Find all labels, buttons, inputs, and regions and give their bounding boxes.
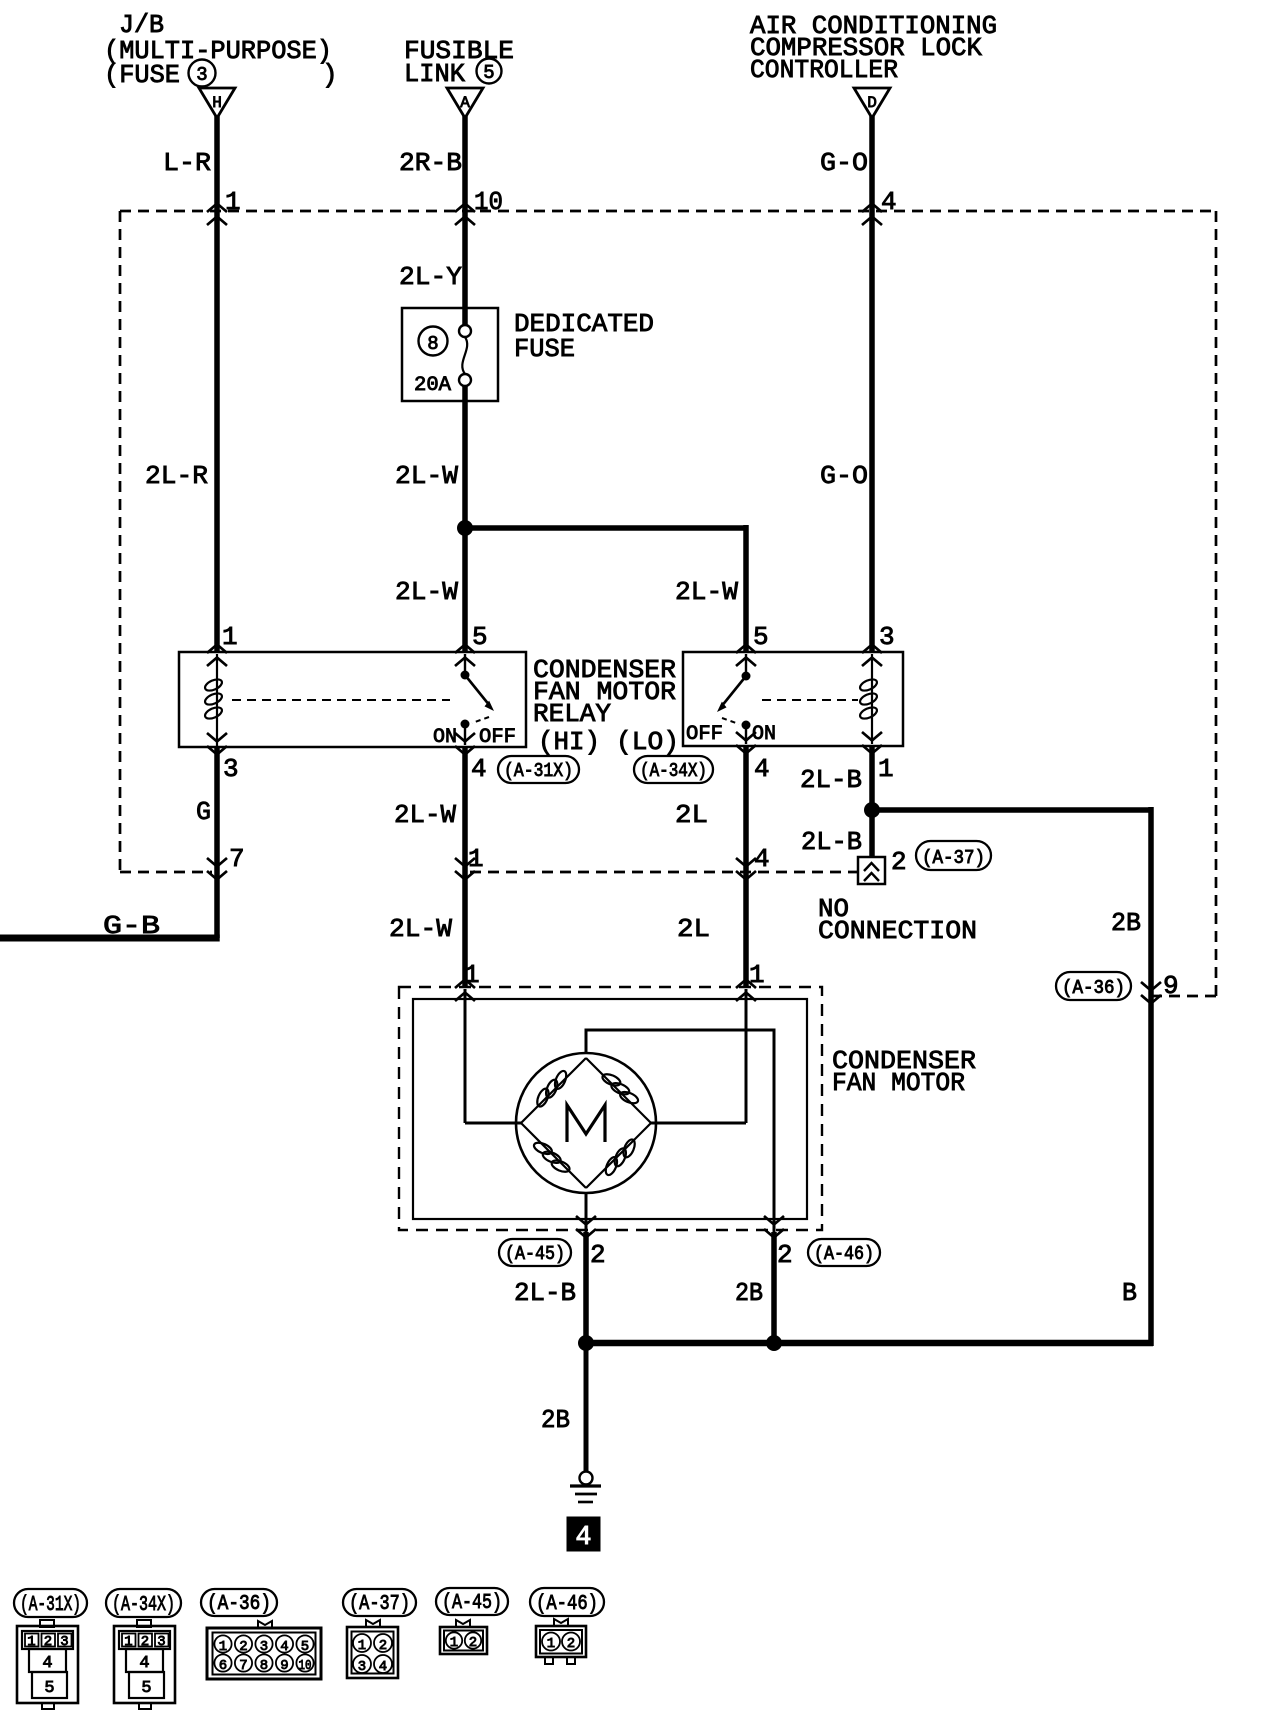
svg-text:3: 3 bbox=[196, 64, 207, 86]
svg-text:4: 4 bbox=[754, 754, 770, 784]
svg-text:9: 9 bbox=[280, 1658, 288, 1674]
svg-text:2: 2 bbox=[567, 1636, 575, 1652]
svg-text:1: 1 bbox=[219, 1639, 227, 1655]
svg-text:2L-W: 2L-W bbox=[394, 800, 456, 830]
svg-text:2L-B: 2L-B bbox=[514, 1278, 576, 1308]
svg-text:4: 4 bbox=[139, 1654, 149, 1673]
svg-text:2: 2 bbox=[379, 1638, 387, 1654]
svg-text:(A-37): (A-37) bbox=[349, 1593, 410, 1616]
svg-text:A: A bbox=[460, 94, 470, 112]
svg-text:): ) bbox=[322, 60, 338, 90]
svg-text:ON: ON bbox=[433, 726, 457, 749]
svg-text:1: 1 bbox=[547, 1636, 555, 1652]
svg-text:2L-B: 2L-B bbox=[800, 765, 862, 795]
svg-text:OFF: OFF bbox=[686, 723, 723, 746]
svg-text:CONTROLLER: CONTROLLER bbox=[750, 55, 898, 85]
svg-text:G-O: G-O bbox=[820, 461, 868, 491]
svg-text:G: G bbox=[196, 797, 211, 827]
svg-text:4: 4 bbox=[280, 1639, 288, 1655]
svg-text:6: 6 bbox=[219, 1658, 227, 1674]
svg-text:L-R: L-R bbox=[163, 148, 211, 178]
svg-text:G-B: G-B bbox=[103, 911, 160, 941]
svg-text:5: 5 bbox=[753, 622, 769, 652]
svg-text:9: 9 bbox=[1163, 971, 1179, 1001]
svg-text:(A-34X): (A-34X) bbox=[640, 760, 707, 782]
svg-text:1: 1 bbox=[124, 1634, 132, 1650]
svg-text:(A-46): (A-46) bbox=[536, 1593, 598, 1616]
svg-text:FAN MOTOR: FAN MOTOR bbox=[832, 1068, 965, 1098]
svg-text:H: H bbox=[212, 94, 222, 112]
svg-text:4: 4 bbox=[471, 754, 487, 784]
svg-text:2L-B: 2L-B bbox=[801, 827, 862, 857]
svg-text:(A-31X): (A-31X) bbox=[504, 760, 573, 782]
svg-text:OFF: OFF bbox=[479, 726, 516, 749]
svg-text:2B: 2B bbox=[541, 1405, 570, 1435]
svg-text:5: 5 bbox=[141, 1679, 151, 1698]
svg-text:2L: 2L bbox=[677, 914, 710, 944]
svg-text:8: 8 bbox=[260, 1658, 268, 1674]
svg-text:2B: 2B bbox=[1111, 908, 1141, 938]
svg-text:FUSE: FUSE bbox=[514, 334, 575, 364]
svg-text:G-O: G-O bbox=[820, 148, 868, 178]
svg-text:(LO): (LO) bbox=[616, 727, 679, 757]
svg-text:(A-46): (A-46) bbox=[814, 1243, 874, 1265]
svg-text:2L: 2L bbox=[675, 800, 708, 830]
svg-text:1: 1 bbox=[450, 1635, 458, 1651]
svg-text:LINK: LINK bbox=[404, 59, 465, 89]
svg-text:2: 2 bbox=[44, 1634, 52, 1650]
svg-text:(FUSE: (FUSE bbox=[104, 60, 180, 90]
svg-text:2L-W: 2L-W bbox=[395, 461, 458, 491]
svg-text:5: 5 bbox=[44, 1679, 54, 1698]
svg-text:3: 3 bbox=[223, 754, 239, 784]
svg-text:(A-36): (A-36) bbox=[1062, 977, 1125, 999]
svg-text:2: 2 bbox=[469, 1635, 477, 1651]
svg-text:4: 4 bbox=[575, 1523, 591, 1553]
svg-text:2: 2 bbox=[141, 1634, 149, 1650]
svg-text:(A-31X): (A-31X) bbox=[20, 1594, 81, 1617]
svg-text:7: 7 bbox=[229, 844, 245, 874]
svg-text:(A-45): (A-45) bbox=[442, 1592, 502, 1615]
svg-text:1: 1 bbox=[222, 622, 238, 652]
svg-text:2B: 2B bbox=[735, 1278, 763, 1308]
svg-text:RELAY: RELAY bbox=[533, 699, 611, 729]
svg-text:4: 4 bbox=[42, 1654, 52, 1673]
svg-text:3: 3 bbox=[157, 1634, 165, 1650]
svg-text:1: 1 bbox=[464, 960, 480, 990]
svg-text:ON: ON bbox=[752, 723, 776, 746]
svg-text:1: 1 bbox=[468, 844, 484, 874]
svg-text:2R-B: 2R-B bbox=[399, 148, 462, 178]
svg-text:CONNECTION: CONNECTION bbox=[818, 916, 977, 946]
svg-text:(HI): (HI) bbox=[538, 727, 600, 757]
svg-text:10: 10 bbox=[299, 1658, 312, 1674]
svg-text:2: 2 bbox=[777, 1240, 793, 1270]
svg-text:2L-W: 2L-W bbox=[389, 914, 452, 944]
svg-text:4: 4 bbox=[379, 1659, 387, 1675]
svg-text:3: 3 bbox=[879, 622, 895, 652]
svg-text:1: 1 bbox=[878, 754, 894, 784]
svg-text:2: 2 bbox=[891, 847, 907, 877]
svg-text:5: 5 bbox=[472, 622, 488, 652]
svg-text:D: D bbox=[867, 94, 877, 112]
svg-text:3: 3 bbox=[60, 1634, 68, 1650]
svg-text:(A-34X): (A-34X) bbox=[112, 1594, 175, 1617]
svg-text:4: 4 bbox=[754, 844, 770, 874]
svg-text:10: 10 bbox=[474, 187, 503, 217]
svg-text:1: 1 bbox=[27, 1634, 35, 1650]
svg-text:8: 8 bbox=[427, 333, 438, 355]
svg-text:B: B bbox=[1122, 1278, 1137, 1308]
svg-text:2: 2 bbox=[590, 1240, 606, 1270]
svg-text:1: 1 bbox=[225, 187, 241, 217]
svg-text:3: 3 bbox=[260, 1639, 268, 1655]
svg-text:5: 5 bbox=[483, 62, 494, 84]
svg-text:2L-W: 2L-W bbox=[395, 577, 458, 607]
svg-text:3: 3 bbox=[358, 1659, 366, 1675]
svg-text:5: 5 bbox=[301, 1639, 309, 1655]
svg-text:1: 1 bbox=[749, 960, 765, 990]
svg-text:4: 4 bbox=[881, 187, 897, 217]
svg-text:7: 7 bbox=[239, 1658, 247, 1674]
svg-text:2L-Y: 2L-Y bbox=[399, 262, 462, 292]
svg-text:(A-36): (A-36) bbox=[207, 1593, 271, 1616]
svg-text:2L-R: 2L-R bbox=[145, 461, 208, 491]
svg-text:(A-45): (A-45) bbox=[505, 1243, 565, 1265]
svg-text:2L-W: 2L-W bbox=[675, 577, 738, 607]
svg-text:20A: 20A bbox=[414, 374, 451, 397]
svg-text:2: 2 bbox=[239, 1639, 247, 1655]
svg-text:1: 1 bbox=[358, 1638, 366, 1654]
svg-text:(A-37): (A-37) bbox=[922, 847, 985, 869]
